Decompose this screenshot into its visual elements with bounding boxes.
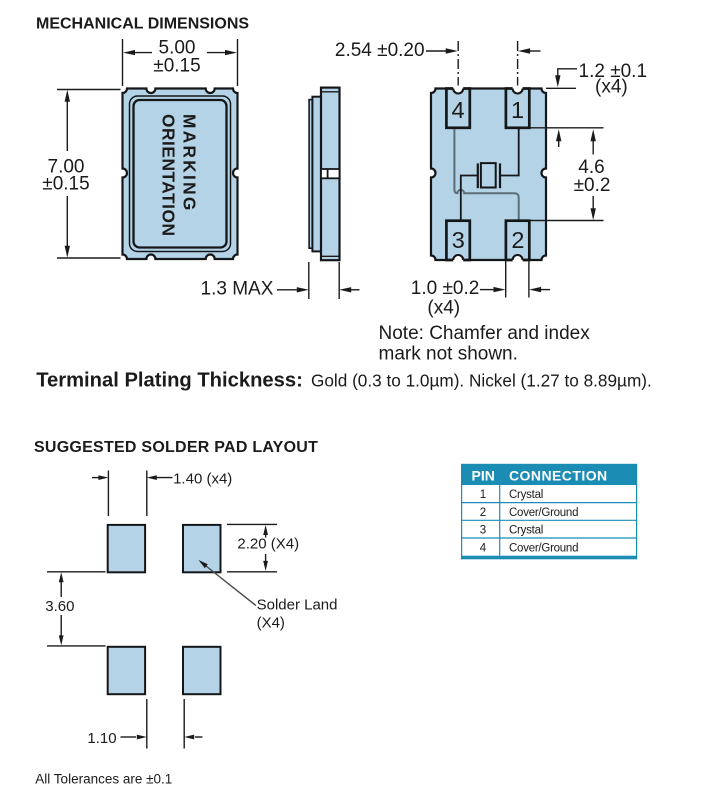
svg-text:±0.2: ±0.2	[574, 175, 611, 196]
svg-text:2.20 (X4): 2.20 (X4)	[237, 536, 299, 553]
svg-text:SUGGESTED SOLDER PAD LAYOUT: SUGGESTED SOLDER PAD LAYOUT	[34, 439, 318, 456]
svg-text:1.10: 1.10	[87, 730, 116, 747]
svg-text:Solder Land: Solder Land	[257, 596, 338, 613]
svg-text:MARKING: MARKING	[179, 114, 199, 213]
svg-text:CONNECTION: CONNECTION	[509, 467, 608, 483]
svg-text:All Tolerances are ±0.1: All Tolerances are ±0.1	[35, 772, 172, 787]
svg-text:3: 3	[480, 525, 486, 537]
svg-text:1.3 MAX: 1.3 MAX	[201, 279, 274, 300]
svg-text:(x4): (x4)	[595, 76, 628, 97]
svg-text:Gold (0.3 to 1.0µm). Nickel (1: Gold (0.3 to 1.0µm). Nickel (1.27 to 8.8…	[311, 371, 652, 391]
svg-text:4: 4	[480, 543, 487, 555]
svg-text:PIN: PIN	[472, 467, 495, 483]
svg-text:ORIENTATION: ORIENTATION	[159, 114, 179, 237]
svg-text:Cover/Ground: Cover/Ground	[509, 543, 578, 555]
svg-text:3: 3	[452, 227, 465, 253]
svg-text:Crystal: Crystal	[509, 489, 543, 501]
svg-text:2: 2	[511, 227, 524, 253]
svg-text:Note: Chamfer and index: Note: Chamfer and index	[379, 323, 591, 344]
svg-text:(X4): (X4)	[257, 614, 285, 631]
svg-text:mark not shown.: mark not shown.	[379, 343, 518, 364]
svg-text:Cover/Ground: Cover/Ground	[509, 507, 578, 519]
svg-text:MECHANICAL DIMENSIONS: MECHANICAL DIMENSIONS	[36, 16, 249, 33]
svg-text:3.60: 3.60	[45, 598, 74, 615]
svg-text:(x4): (x4)	[427, 298, 460, 319]
svg-text:2.54 ±0.20: 2.54 ±0.20	[335, 40, 425, 61]
svg-text:1: 1	[511, 97, 524, 123]
svg-text:2: 2	[480, 507, 486, 519]
svg-text:4: 4	[451, 97, 464, 123]
svg-text:Terminal Plating Thickness:: Terminal Plating Thickness:	[36, 370, 303, 392]
svg-text:1.0 ±0.2: 1.0 ±0.2	[411, 278, 480, 299]
svg-text:±0.15: ±0.15	[42, 174, 89, 195]
svg-text:Crystal: Crystal	[509, 525, 543, 537]
svg-text:1.40 (x4): 1.40 (x4)	[173, 471, 232, 488]
svg-text:1: 1	[480, 489, 486, 501]
svg-text:±0.15: ±0.15	[153, 56, 200, 77]
